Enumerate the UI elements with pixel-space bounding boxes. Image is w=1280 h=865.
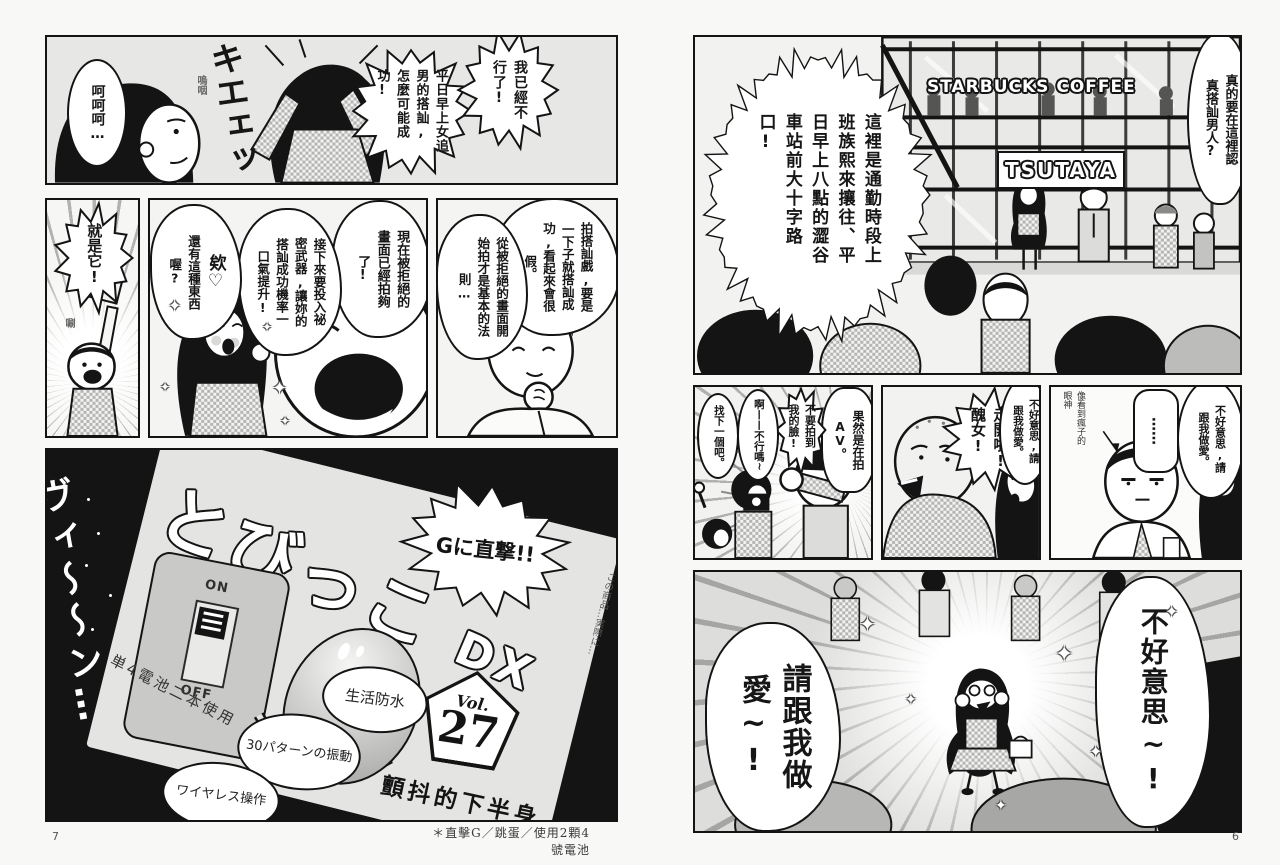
excuse-me-text: 不好意思,請跟我做愛。 — [1009, 396, 1041, 466]
tsutaya-sign: TSUTAYA — [997, 151, 1125, 189]
footnote-caption: ＊直擊G／跳蛋／使用2顆4號電池 — [420, 824, 590, 858]
sob-sfx: 嗚咽 — [193, 75, 208, 105]
narration-text: 這裡是通勤時段上班族熙來攘往、平日早上八點的澀谷車站前大十字路口! — [752, 113, 884, 278]
really-text: 真的要在這裡認真搭訕男人? — [1201, 69, 1240, 169]
comic-spread: 呵呵呵… キエェッ 嗚咽 平日早上女追男的搭訕,怎麼可能成功! 我已經不行了! — [0, 0, 1280, 865]
sparkle-icon: ✦ — [1055, 642, 1073, 667]
tsutaya-sign-text: TSUTAYA — [1005, 158, 1117, 182]
basic-rule-text: 從被拒絕的畫面開始拍才是基本的法則… — [454, 237, 510, 337]
speech-bubble-laugh: 呵呵呵… — [67, 59, 127, 167]
no-good-text: 啊——不行嗎~ — [750, 396, 766, 474]
panel-crossing: STARBUCKS COFFEE TSUTAYA 這裡是通勤時段上班族熙來攘往、… — [693, 35, 1242, 375]
face-text: 不要拍到我的臉! — [785, 404, 818, 456]
panel-intro: 呵呵呵… キエェッ 嗚咽 平日早上女追男的搭訕,怎麼可能成功! 我已經不行了! — [45, 35, 618, 185]
speech-bubble-really: 真的要在這裡認真搭訕男人? — [1187, 35, 1242, 205]
swish-sfx: 唰 — [61, 318, 76, 338]
page-number-right: 6 — [1232, 830, 1239, 843]
eh-text: 欸♡ — [202, 232, 228, 312]
thats-it-text: 就是它! — [83, 223, 106, 293]
sparkle-icon: ✦ — [859, 612, 876, 636]
panel-rule: 拍搭訕戲,要是一下子就搭訕成功,看起來會很假。 從被拒絕的畫面開始拍才是基本的法… — [436, 198, 618, 438]
feature-wireless-text: ワイヤレス操作 — [175, 783, 267, 809]
speech-bubble-av: 果然是在拍AV。 — [821, 387, 873, 493]
page-number-left: 7 — [52, 830, 59, 843]
speech-bubble-excuse-me-2: 不好意思,請跟我做愛。 — [1177, 385, 1242, 499]
panel-stare: 不好意思,請跟我做愛。 …… 像看到瘋子的眼神 — [1049, 385, 1242, 560]
narration-bubble: 這裡是通勤時段上班族熙來攘往、平日早上八點的澀谷車站前大十字路口! — [699, 43, 937, 347]
excuse-me-2-text: 不好意思,請跟我做愛。 — [1195, 403, 1228, 475]
panel-thats-it: 就是它! 唰 — [45, 198, 140, 438]
sparkle-icon: ✦ — [160, 380, 170, 394]
speech-bubble-impossible: 平日早上女追男的搭訕,怎麼可能成功! — [347, 43, 475, 179]
speckles-decoration — [87, 498, 90, 501]
laugh-text: 呵呵呵… — [87, 77, 108, 149]
feature-vibration-text: 30パターンの振動 — [245, 738, 353, 766]
panel-plea: ✦ ✦ ✦ ✦ ✦ ✦ 請跟我做愛~! 不好意思~! — [693, 570, 1242, 833]
silence-text: …… — [1146, 403, 1167, 459]
enough-text: 現在被拒絕的畫面已經拍夠了! — [353, 227, 412, 311]
speech-bubble-enough: 現在被拒絕的畫面已經拍夠了! — [332, 200, 428, 338]
speech-bubble-thats-it: 就是它! — [53, 202, 135, 314]
panel-secret-weapon: ✦ ✦ ✦ ✦ ✦ 現在被拒絕的畫面已經拍夠了! 接下來要投入祕密武器,讓妳的搭… — [148, 198, 428, 438]
sparkle-icon: ✦ — [168, 296, 181, 315]
sparkle-icon: ✦ — [280, 414, 290, 428]
weapon-text: 接下來要投入祕密武器,讓妳的搭訕成功機率一口氣提升! — [253, 234, 328, 330]
speech-bubble-silence: …… — [1133, 389, 1179, 473]
panel-product: ヴィ〜〜ン… Gに直撃!! とびっこ DX ON OFF — [45, 448, 618, 822]
starbucks-sign: STARBUCKS COFFEE — [927, 77, 1132, 97]
speech-bubble-no-good: 啊——不行嗎~ — [737, 389, 779, 481]
sparkle-icon: ✦ — [1165, 602, 1178, 621]
product-package: Gに直撃!! とびっこ DX ON OFF 生活防 — [84, 448, 618, 822]
volume-number: 27 — [435, 707, 501, 754]
panel-ugly: 走開啦!醜女! 不好意思,請跟我做愛。 — [881, 385, 1041, 560]
sparkle-icon: ✦ — [995, 798, 1007, 814]
speech-bubble-face: 不要拍到我的臉! — [775, 385, 827, 475]
sparkle-icon: ✦ — [1089, 742, 1102, 761]
shout-excuse-text: 不好意思~! — [1136, 597, 1170, 807]
av-text: 果然是在拍AV。 — [831, 407, 867, 473]
panel-av: 果然是在拍AV。 不要拍到我的臉! 啊——不行嗎~ 找下一個吧。 — [693, 385, 873, 560]
speech-bubble-next-one: 找下一個吧。 — [697, 393, 739, 479]
speech-bubble-give-up: 我已經不行了! — [457, 35, 561, 151]
sparkle-icon: ✦ — [262, 320, 272, 334]
shout-love-text: 請跟我做愛~! — [733, 652, 814, 802]
lunatic-note: 像看到瘋子的眼神 — [1059, 391, 1086, 449]
sparkle-icon: ✦ — [905, 692, 917, 708]
give-up-text: 我已經不行了! — [488, 60, 530, 120]
sparkle-icon: ✦ — [272, 378, 287, 399]
impossible-text: 平日早上女追男的搭訕,怎麼可能成功! — [372, 69, 450, 153]
feature-waterproof-text: 生活防水 — [344, 688, 406, 712]
fake-text: 拍搭訕戲,要是一下子就搭訕成功,看起來會很假。 — [520, 218, 595, 316]
next-one-text: 找下一個吧。 — [710, 402, 726, 470]
